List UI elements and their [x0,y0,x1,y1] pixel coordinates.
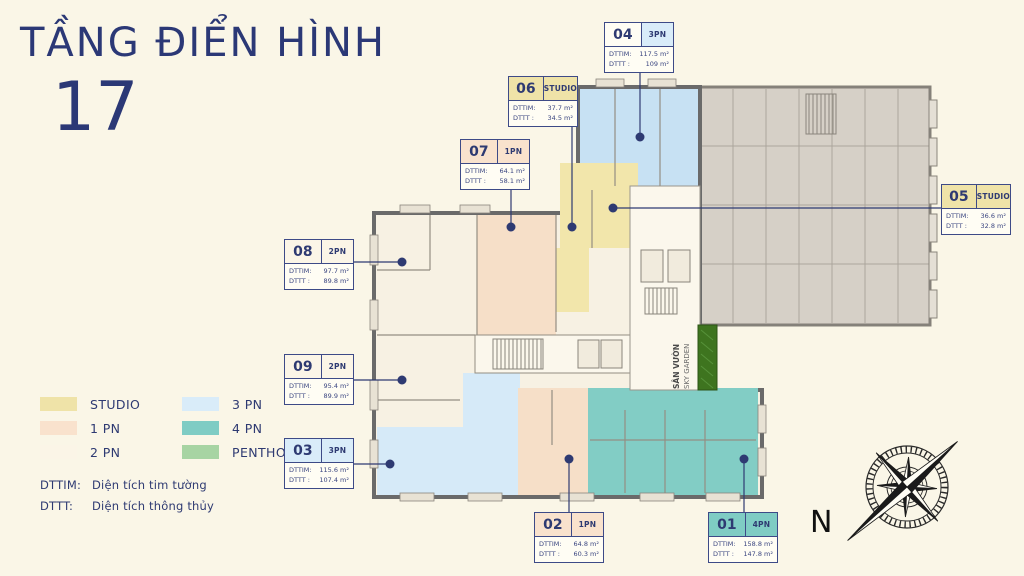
studio-swatch [40,397,77,411]
dttt-value: 34.5 m² [548,114,573,122]
dttim-value: 117.5 m² [639,50,669,58]
unit-callout-07: 07 1PN DTTIM:64.1 m² DTTT :58.1 m² [460,139,530,190]
unit-type-badge: 2PN [322,355,353,378]
legend-item-4pn: 4 PN [182,416,332,440]
dttim-value: 97.7 m² [324,267,349,275]
dttt-label: DTTT : [609,60,630,68]
dttim-label: DTTIM: [289,466,312,474]
unit-callout-05: 05 STUDIO DTTIM:36.6 m² DTTT :32.8 m² [941,184,1011,235]
unit-06-strip [553,248,589,312]
unit-07-marker [507,223,516,232]
unit-type-badge: 3PN [322,439,353,462]
dttim-label: DTTIM: [513,104,536,112]
unit-number: 09 [285,355,322,378]
unit-callout-01: 01 4PN DTTIM:158.8 m² DTTT :147.8 m² [708,512,778,563]
2pn-swatch [40,445,77,459]
unit-type-badge: 1PN [498,140,529,163]
unit-type-badge: STUDIO [977,185,1010,208]
elevator [578,340,599,368]
stairs-core [493,339,543,369]
dttim-value: 158.8 m² [743,540,773,548]
dttim-label: DTTIM: [289,267,312,275]
unit-09-marker [398,376,407,385]
unit-number: 04 [605,23,642,46]
unit-03-marker [386,460,395,469]
page: TẦNG ĐIỂN HÌNH 17 [0,0,1024,576]
unit-02-marker [565,455,574,464]
unit-number: 06 [509,77,544,100]
dttt-label: DTTT : [539,550,560,558]
unit-number: 08 [285,240,322,263]
unit-02-area [518,388,588,495]
dttim-value: 36.6 m² [981,212,1006,220]
legend-item-2pn: 2 PN [40,440,158,464]
unit-01-area [588,388,758,495]
unit-number: 01 [709,513,746,536]
dttt-label: DTTT : [289,476,310,484]
3pn-swatch [182,397,219,411]
dttt-value: 89.9 m² [324,392,349,400]
unit-01-marker [740,455,749,464]
unit-04-marker [636,133,645,142]
dttim-label: DTTIM: [465,167,488,175]
unit-08-marker [398,258,407,267]
unit-type-badge: STUDIO [544,77,577,100]
dttim-value: 64.1 m² [500,167,525,175]
penthouse-swatch [182,445,219,459]
compass-icon [848,442,958,541]
unit-06-marker [568,223,577,232]
dttt-value: 89.8 m² [324,277,349,285]
unit-type-badge: 2PN [322,240,353,263]
compass-north-label: N [810,505,832,540]
unit-callout-03: 03 3PN DTTIM:115.6 m² DTTT :107.4 m² [284,438,354,489]
unit-type-badge: 3PN [642,23,673,46]
dttim-label: DTTIM: [946,212,969,220]
note-dttt: DTTT: Diện tích thông thủy [40,499,332,513]
stairs-gray-block [806,94,836,134]
dttt-value: 58.1 m² [500,177,525,185]
unit-callout-06: 06 STUDIO DTTIM:37.7 m² DTTT :34.5 m² [508,76,578,127]
dttt-label: DTTT : [946,222,967,230]
unit-type-badge: 4PN [746,513,777,536]
stairs-core-2 [645,288,677,314]
dttt-value: 107.4 m² [319,476,349,484]
dttt-value: 147.8 m² [743,550,773,558]
elevator [601,340,622,368]
dttim-value: 64.8 m² [574,540,599,548]
dttt-label: DTTT : [465,177,486,185]
unit-callout-04: 04 3PN DTTIM:117.5 m² DTTT :109 m² [604,22,674,73]
1pn-swatch [40,421,77,435]
unit-07-area [477,215,556,335]
dttt-value: 32.8 m² [981,222,1006,230]
elevator [641,250,663,282]
dttim-label: DTTIM: [713,540,736,548]
unit-number: 02 [535,513,572,536]
4pn-swatch [182,421,219,435]
dttim-label: DTTIM: [289,382,312,390]
legend-item-1pn: 1 PN [40,416,158,440]
dttt-label: DTTT : [713,550,734,558]
dttim-value: 115.6 m² [319,466,349,474]
dttim-value: 95.4 m² [324,382,349,390]
unit-number: 07 [461,140,498,163]
unit-number: 05 [942,185,977,208]
legend-item-studio: STUDIO [40,392,158,416]
sky-garden-label-en: SKY GARDEN [683,344,691,389]
elevator [668,250,690,282]
dttt-label: DTTT : [289,392,310,400]
unit-05-marker [609,204,618,213]
dttt-value: 109 m² [646,60,669,68]
unit-type-badge: 1PN [572,513,603,536]
dttt-value: 60.3 m² [574,550,599,558]
unit-callout-09: 09 2PN DTTIM:95.4 m² DTTT :89.9 m² [284,354,354,405]
sky-garden-label-vi: SÂN VƯỜN [672,344,681,389]
unit-callout-02: 02 1PN DTTIM:64.8 m² DTTT :60.3 m² [534,512,604,563]
unit-callout-08: 08 2PN DTTIM:97.7 m² DTTT :89.8 m² [284,239,354,290]
dttim-label: DTTIM: [539,540,562,548]
dttim-value: 37.7 m² [548,104,573,112]
dttt-label: DTTT : [289,277,310,285]
unit-number: 03 [285,439,322,462]
dttt-label: DTTT : [513,114,534,122]
dttim-label: DTTIM: [609,50,632,58]
adjacent-tower-block [700,87,937,325]
